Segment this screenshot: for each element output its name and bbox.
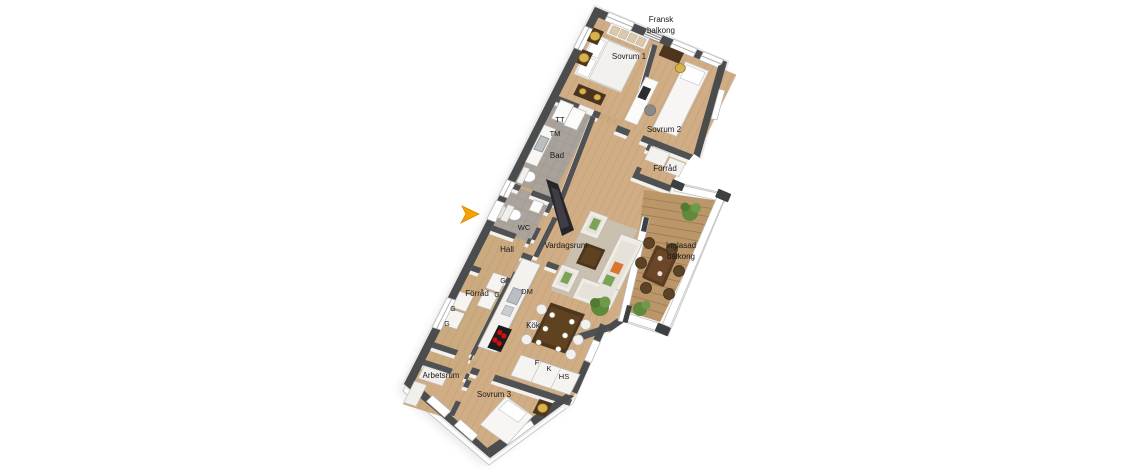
svg-text:Inglasad: Inglasad xyxy=(666,241,696,250)
svg-text:G: G xyxy=(444,321,449,328)
svg-text:TM: TM xyxy=(550,129,561,138)
svg-text:TT: TT xyxy=(555,115,565,124)
svg-text:Bad: Bad xyxy=(550,151,564,160)
svg-text:HS: HS xyxy=(559,372,569,381)
svg-text:Sovrum 2: Sovrum 2 xyxy=(647,125,682,134)
svg-text:G: G xyxy=(494,292,499,299)
svg-text:Förråd: Förråd xyxy=(653,164,677,173)
svg-text:Kök: Kök xyxy=(526,321,541,330)
svg-text:WC: WC xyxy=(518,223,531,232)
svg-text:G: G xyxy=(500,278,505,285)
svg-text:Sovrum 1: Sovrum 1 xyxy=(612,52,647,61)
svg-text:K: K xyxy=(546,364,551,373)
svg-text:balkong: balkong xyxy=(647,26,675,35)
svg-text:DM: DM xyxy=(521,287,533,296)
svg-text:Fransk: Fransk xyxy=(649,15,674,24)
svg-text:Hall: Hall xyxy=(500,245,514,254)
svg-text:Förråd: Förråd xyxy=(465,289,489,298)
svg-text:balkong: balkong xyxy=(667,252,695,261)
svg-text:Vardagsrum: Vardagsrum xyxy=(545,241,588,250)
svg-text:F: F xyxy=(535,358,540,367)
svg-text:Sovrum 3: Sovrum 3 xyxy=(477,390,512,399)
svg-text:Arbetsrum: Arbetsrum xyxy=(423,371,460,380)
svg-text:G: G xyxy=(450,306,455,313)
